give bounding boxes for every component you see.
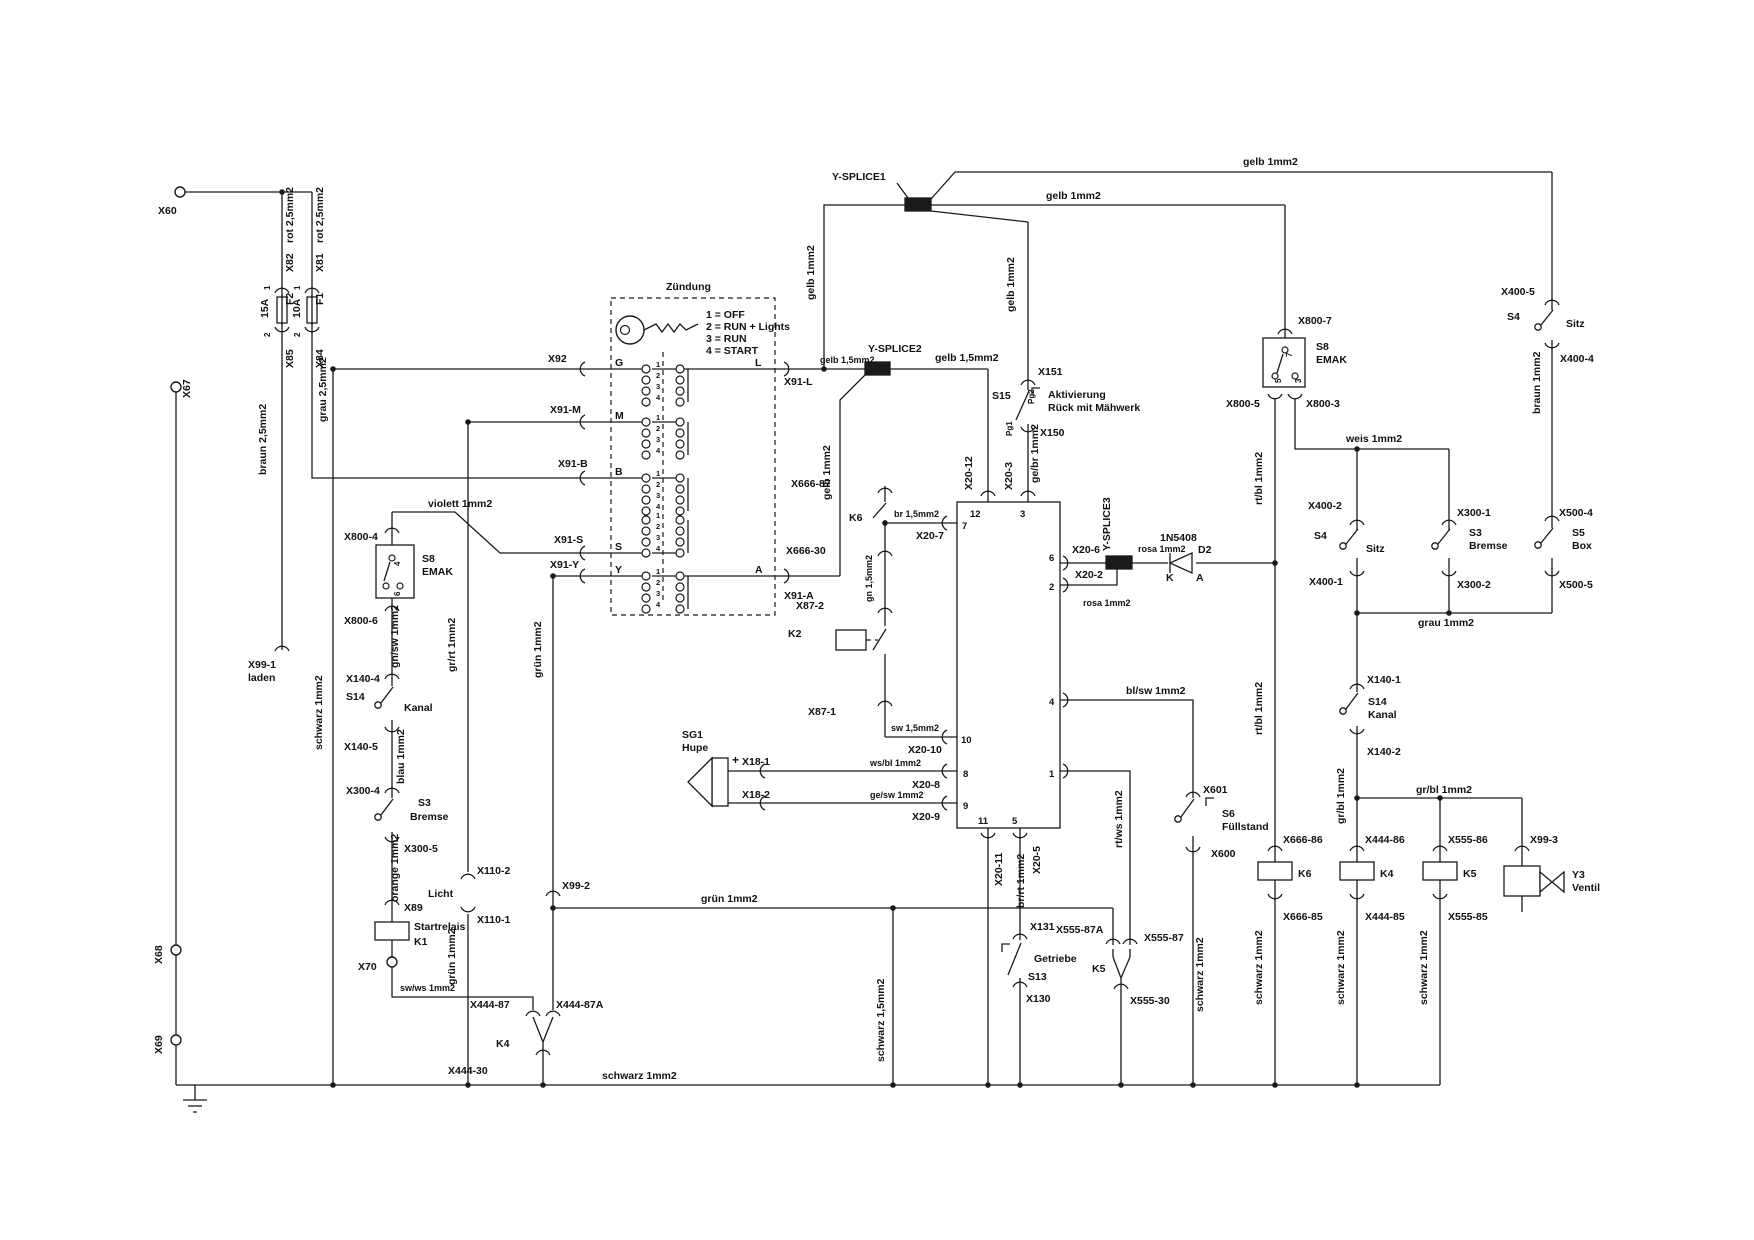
wire: [1060, 700, 1193, 798]
label-s3l: S3: [418, 797, 431, 809]
ignition-contact-icon: [642, 549, 650, 557]
label-wsbl: ws/bl 1mm2: [869, 758, 921, 768]
label-x55587a: X555-87A: [1056, 924, 1104, 936]
label-k5: K5: [1463, 868, 1477, 880]
label-k6: K6: [1298, 868, 1312, 880]
label-x1402: X140-2: [1367, 746, 1401, 758]
label-igM3: 3: [656, 435, 660, 444]
label-igG2: 2: [656, 371, 660, 380]
connector-arc: [1288, 394, 1302, 399]
label-x8003: X800-3: [1306, 398, 1340, 410]
ignition-contact-icon: [642, 376, 650, 384]
label-f1: F1: [314, 293, 326, 305]
wire: [392, 512, 644, 553]
junction-dot: [1354, 446, 1360, 452]
label-braun1: braun 1mm2: [1531, 351, 1543, 414]
label-igB2: 2: [656, 480, 660, 489]
label-tY: Y: [615, 564, 622, 576]
switch-pivot-icon: [1175, 816, 1181, 822]
junction-dot: [1354, 1082, 1360, 1088]
ignition-contact-icon: [642, 507, 650, 515]
label-p7: 7: [1285, 352, 1294, 357]
label-igS4: 4: [656, 544, 661, 553]
label-s15: S15: [992, 390, 1011, 402]
ignition-contact-icon: [676, 507, 684, 515]
label-gesw: ge/sw 1mm2: [870, 790, 924, 800]
label-s8r: S8: [1316, 341, 1329, 353]
label-igY3: 3: [656, 589, 660, 598]
label-grrt: gr/rt 1mm2: [446, 618, 458, 672]
wire: [1346, 529, 1358, 544]
k4-coil-icon: [1340, 862, 1374, 880]
label-gebr: ge/br 1mm2: [1029, 424, 1041, 483]
label-zuendung: Zündung: [666, 281, 711, 293]
wire: [543, 1017, 553, 1042]
label-br15: br 1,5mm2: [894, 509, 939, 519]
junction-dot: [1272, 560, 1278, 566]
label-kanalr: Kanal: [1368, 709, 1397, 721]
label-ys1: Y-SPLICE1: [832, 171, 886, 183]
x60-terminal: [175, 187, 185, 197]
ignition-contact-icon: [642, 429, 650, 437]
ignition-contact-icon: [642, 527, 650, 535]
label-x150: X150: [1040, 427, 1065, 439]
label-x1401: X140-1: [1367, 674, 1401, 686]
label-x85: X85: [284, 349, 296, 368]
label-brrt: br/rt 1mm2: [1015, 854, 1027, 908]
ignition-contact-icon: [676, 429, 684, 437]
label-kanall: Kanal: [404, 702, 433, 714]
ignition-contact-icon: [642, 387, 650, 395]
diode-triangle-icon: [1170, 553, 1192, 573]
label-rosab: rosa 1mm2: [1083, 598, 1131, 608]
label-igB1: 1: [656, 469, 660, 478]
x70-terminal: [387, 957, 397, 967]
label-schw15: schwarz 1,5mm2: [875, 978, 887, 1062]
s8-pin-icon: [383, 583, 389, 589]
label-x82: X82: [284, 253, 296, 272]
ignition-contact-icon: [676, 365, 684, 373]
connector-arc: [1268, 394, 1282, 399]
wire: [1277, 354, 1283, 373]
label-x151: X151: [1038, 366, 1063, 378]
label-y3: Y3: [1572, 869, 1585, 881]
wire: [644, 324, 698, 332]
y3-bowtie-left-icon: [1540, 872, 1552, 892]
wire: [1002, 944, 1010, 952]
connector-arc: [526, 1011, 540, 1016]
label-f2p2: 2: [263, 332, 272, 337]
label-x92: X92: [548, 353, 567, 365]
label-k4c: K4: [496, 1038, 510, 1050]
junction-dot: [985, 1082, 991, 1088]
connector-arc: [546, 1011, 560, 1016]
label-schwbus: schwarz 1mm2: [602, 1070, 677, 1082]
ignition-contact-icon: [676, 583, 684, 591]
label-orange1: orange 1mm2: [389, 834, 401, 902]
wire: [1008, 943, 1021, 975]
wire: [931, 172, 1552, 199]
label-x91s: X91-S: [554, 534, 583, 546]
wire: [1346, 693, 1358, 709]
key-icon-hole: [621, 326, 630, 335]
label-leg2: 2 = RUN + Lights: [706, 321, 790, 333]
label-b1: 1: [1049, 769, 1055, 780]
ignition-contact-icon: [676, 451, 684, 459]
wire: [312, 323, 644, 478]
x67-terminal: [171, 382, 181, 392]
label-x81: X81: [314, 253, 326, 272]
k5-coil-icon: [1423, 862, 1457, 880]
label-b12: 12: [970, 509, 981, 520]
wire: [873, 629, 886, 650]
label-leg4: 4 = START: [706, 345, 759, 357]
y3-valve-body-icon: [1504, 866, 1540, 896]
connector-arc: [461, 907, 475, 912]
label-x2012: X20-12: [963, 456, 975, 490]
label-x69: X69: [153, 1035, 165, 1054]
label-x182: X18-2: [742, 789, 770, 801]
label-x1405: X140-5: [344, 741, 378, 753]
label-x66630: X666-30: [786, 545, 826, 557]
label-rtbla: rt/bl 1mm2: [1253, 452, 1265, 505]
label-igS1: 1: [656, 511, 660, 520]
label-x3004: X300-4: [346, 785, 380, 797]
label-x5004: X500-4: [1559, 507, 1593, 519]
label-x991: X99-1: [248, 659, 276, 671]
label-s4t: S4: [1507, 311, 1520, 323]
label-gelb1a: gelb 1mm2: [821, 445, 833, 500]
wire: [1541, 310, 1553, 325]
label-x44430: X444-30: [448, 1065, 488, 1077]
label-x91b: X91-B: [558, 458, 588, 470]
junction-dot: [1118, 1082, 1124, 1088]
ignition-contact-icon: [676, 538, 684, 546]
s8-pin-icon: [397, 583, 403, 589]
label-x55585: X555-85: [1448, 911, 1488, 923]
label-igB3: 3: [656, 491, 660, 500]
ignition-contact-icon: [642, 496, 650, 504]
label-s4m: S4: [1314, 530, 1327, 542]
switch-pivot-icon: [1432, 543, 1438, 549]
label-gnsw: gn/sw 1mm2: [389, 605, 401, 668]
label-gruenh: grün 1mm2: [701, 893, 758, 905]
ignition-contact-icon: [676, 418, 684, 426]
label-x44486: X444-86: [1365, 834, 1405, 846]
y-splice3: [1106, 556, 1132, 569]
label-x207: X20-7: [916, 530, 944, 542]
label-x206: X20-6: [1072, 544, 1100, 556]
label-x8007: X800-7: [1298, 315, 1332, 327]
label-sw15: sw 1,5mm2: [891, 723, 939, 733]
horn-bell-icon: [688, 758, 712, 806]
label-igG4: 4: [656, 393, 661, 402]
ignition-contact-icon: [642, 440, 650, 448]
label-gelb15b: gelb 1,5mm2: [935, 352, 999, 364]
label-x66685: X666-85: [1283, 911, 1323, 923]
label-p5: 5: [1274, 378, 1283, 383]
wire: [381, 799, 393, 815]
junction-dot: [540, 1082, 546, 1088]
label-grblh: gr/bl 1mm2: [1416, 784, 1472, 796]
label-x1102: X110-2: [477, 865, 510, 877]
ignition-contact-icon: [676, 440, 684, 448]
label-x68: X68: [153, 945, 165, 964]
s8-pin-icon: [1292, 373, 1298, 379]
wire: [1206, 798, 1214, 806]
label-x871: X87-1: [808, 706, 836, 718]
ignition-contact-icon: [642, 398, 650, 406]
junction-dot: [465, 419, 471, 425]
label-x5005: X500-5: [1559, 579, 1593, 591]
label-x67: X67: [181, 379, 193, 398]
ignition-contact-icon: [676, 474, 684, 482]
label-leg1: 1 = OFF: [706, 309, 745, 321]
switch-pivot-icon: [1535, 324, 1541, 330]
label-k5c: K5: [1092, 963, 1106, 975]
label-rosaa: rosa 1mm2: [1138, 544, 1186, 554]
label-a15: 15A: [259, 298, 271, 318]
label-igS3: 3: [656, 533, 660, 542]
label-f1p1: 1: [293, 285, 302, 290]
ignition-contact-icon: [642, 485, 650, 493]
label-x2011: X20-11: [993, 853, 1005, 886]
label-tL: L: [755, 357, 762, 369]
label-x202: X20-2: [1075, 569, 1103, 581]
label-b5: 5: [1012, 816, 1018, 827]
label-b9: 9: [963, 801, 968, 812]
switch-pivot-icon: [1340, 708, 1346, 714]
label-violett: violett 1mm2: [428, 498, 492, 510]
label-gn15: gn 1,5mm2: [864, 555, 874, 602]
x69-terminal: [171, 1035, 181, 1045]
label-x205: X20-5: [1031, 846, 1043, 874]
label-x91m: X91-M: [550, 404, 581, 416]
label-licht: Licht: [428, 888, 454, 900]
s8-emak-left-box-icon: [376, 545, 414, 598]
label-igY1: 1: [656, 567, 660, 576]
label-tS: S: [615, 541, 622, 553]
ignition-contact-icon: [676, 516, 684, 524]
label-x3001: X300-1: [1457, 507, 1491, 519]
junction-dot: [1017, 1082, 1023, 1088]
wire: [533, 1017, 543, 1042]
label-laden: laden: [248, 672, 275, 684]
label-s6: S6: [1222, 808, 1235, 820]
label-sitzt: Sitz: [1566, 318, 1585, 330]
label-tG: G: [615, 357, 623, 369]
junction-dot: [550, 573, 556, 579]
label-akt2: Rück mit Mähwerk: [1048, 402, 1140, 414]
label-x55530: X555-30: [1130, 995, 1170, 1007]
label-igB4: 4: [656, 502, 661, 511]
label-s13: S13: [1028, 971, 1047, 983]
ignition-contact-icon: [642, 583, 650, 591]
ignition-contact-icon: [642, 474, 650, 482]
label-x4001: X400-1: [1309, 576, 1343, 588]
label-x4002: X400-2: [1308, 500, 1342, 512]
label-x203: X20-3: [1003, 462, 1015, 490]
label-da: A: [1196, 572, 1204, 584]
label-p3: 3: [1294, 378, 1303, 383]
label-x89: X89: [404, 902, 423, 914]
label-emakl: EMAK: [422, 566, 453, 578]
ignition-contact-icon: [676, 605, 684, 613]
label-x55586: X555-86: [1448, 834, 1488, 846]
label-a10: 10A: [291, 298, 303, 318]
label-leg3: 3 = RUN: [706, 333, 747, 345]
ignition-contact-icon: [676, 485, 684, 493]
label-x601: X601: [1203, 784, 1228, 796]
label-igM1: 1: [656, 413, 660, 422]
connector-arc: [461, 874, 475, 879]
label-x4005: X400-5: [1501, 286, 1535, 298]
ignition-contact-icon: [642, 538, 650, 546]
ignition-contact-icon: [642, 418, 650, 426]
label-x70: X70: [358, 961, 377, 973]
label-b3: 3: [1020, 509, 1025, 520]
label-k2: K2: [788, 628, 802, 640]
label-x44487a: X444-87A: [556, 999, 604, 1011]
switch-pivot-icon: [375, 814, 381, 820]
label-plus: +: [732, 753, 739, 767]
label-rot25a: rot 2,5mm2: [284, 187, 296, 243]
wire: [931, 211, 1028, 222]
y3-bowtie-right-icon: [1552, 872, 1564, 892]
s8-pin-icon: [389, 555, 395, 561]
label-n5408: 1N5408: [1160, 532, 1197, 544]
label-grblv: gr/bl 1mm2: [1335, 768, 1347, 824]
label-schw2: schwarz 1mm2: [1335, 930, 1347, 1005]
label-x181: X18-1: [742, 756, 770, 768]
ignition-contact-icon: [676, 496, 684, 504]
label-braun25: braun 2,5mm2: [257, 404, 269, 475]
schematic: X60rot 2,5mm2X821F215A2X85braun 2,5mm2X9…: [0, 0, 1754, 1240]
label-x91y: X91-Y: [550, 559, 579, 571]
label-ys3: Y-SPLICE3: [1101, 497, 1113, 551]
label-x872: X87-2: [796, 600, 824, 612]
label-x8006: X800-6: [344, 615, 378, 627]
ignition-contact-icon: [642, 572, 650, 580]
label-f2p1: 1: [263, 285, 272, 290]
label-igY4: 4: [656, 600, 661, 609]
ignition-contact-icon: [676, 387, 684, 395]
label-schw4: schwarz 1mm2: [1194, 937, 1206, 1012]
label-weis: weis 1mm2: [1345, 433, 1402, 445]
y-splice1: [905, 198, 931, 211]
label-igG1: 1: [656, 360, 660, 369]
ignition-contact-icon: [676, 572, 684, 580]
label-tA: A: [755, 564, 763, 576]
junction-dot: [882, 520, 888, 526]
label-sg1: SG1: [682, 729, 703, 741]
labels-layer: X60rot 2,5mm2X821F215A2X85braun 2,5mm2X9…: [153, 156, 1600, 1082]
label-k4: K4: [1380, 868, 1394, 880]
label-x600: X600: [1211, 848, 1236, 860]
label-x44487: X444-87: [470, 999, 510, 1011]
ignition-contact-icon: [642, 365, 650, 373]
wire: [381, 687, 393, 703]
label-x2010: X20-10: [908, 744, 942, 756]
label-gelb1s: gelb 1mm2: [1005, 257, 1017, 312]
label-x4004: X400-4: [1560, 353, 1594, 365]
label-s14r: S14: [1368, 696, 1387, 708]
junction-dot: [1354, 795, 1360, 801]
x68-terminal: [171, 945, 181, 955]
label-sitzm: Sitz: [1366, 543, 1385, 555]
label-x66687: X666-87: [791, 478, 831, 490]
ignition-contact-icon: [676, 398, 684, 406]
label-breml: Bremse: [410, 811, 449, 823]
label-box: Box: [1572, 540, 1592, 552]
junction-dot: [1437, 795, 1443, 801]
label-k1: K1: [414, 936, 428, 948]
label-gelb15a: gelb 1,5mm2: [820, 355, 875, 365]
label-x1404: X140-4: [346, 673, 380, 685]
label-ventil: Ventil: [1572, 882, 1600, 894]
label-schw3: schwarz 1mm2: [1418, 930, 1430, 1005]
junction-dot: [330, 366, 336, 372]
label-b8: 8: [963, 769, 968, 780]
label-d2: D2: [1198, 544, 1212, 556]
ignition-contact-icon: [676, 527, 684, 535]
label-b7: 7: [962, 521, 967, 532]
label-x993: X99-3: [1530, 834, 1558, 846]
label-k6c: K6: [849, 512, 863, 524]
label-x91l: X91-L: [784, 376, 813, 388]
s8-pin-icon: [1272, 373, 1278, 379]
ignition-contact-icon: [676, 376, 684, 384]
label-swws: sw/ws 1mm2: [400, 983, 455, 993]
label-x60: X60: [158, 205, 177, 217]
k2-relay-box-icon: [836, 630, 866, 650]
ignition-contact-icon: [642, 516, 650, 524]
label-s3r: S3: [1469, 527, 1482, 539]
label-rtblb: rt/bl 1mm2: [1253, 682, 1265, 735]
wire: [1438, 529, 1450, 544]
label-rtws: rt/ws 1mm2: [1113, 790, 1125, 848]
label-igM2: 2: [656, 424, 660, 433]
label-x44485: X444-85: [1365, 911, 1405, 923]
ignition-contact-icon: [642, 594, 650, 602]
wire: [384, 562, 390, 581]
label-s14l: S14: [346, 691, 365, 703]
label-x992: X99-2: [562, 880, 590, 892]
junction-dot: [1190, 1082, 1196, 1088]
wire: [840, 372, 868, 576]
label-p6l: 6: [393, 591, 402, 596]
label-x8004: X800-4: [344, 531, 378, 543]
label-gelb1d: gelb 1mm2: [805, 245, 817, 300]
junction-dot: [821, 366, 827, 372]
s8-pin-icon: [1282, 347, 1288, 353]
k6-coil-icon: [1258, 862, 1292, 880]
label-bremr: Bremse: [1469, 540, 1508, 552]
label-igY2: 2: [656, 578, 660, 587]
label-s5: S5: [1572, 527, 1585, 539]
label-igS2: 2: [656, 522, 660, 531]
wire: [1113, 957, 1121, 978]
label-x66686: X666-86: [1283, 834, 1323, 846]
schematic-page: X60rot 2,5mm2X821F215A2X85braun 2,5mm2X9…: [0, 0, 1754, 1240]
label-pg1: Pg1: [1005, 421, 1014, 436]
junction-dot: [890, 905, 896, 911]
label-x209: X20-9: [912, 811, 940, 823]
label-schwg: schwarz 1mm2: [313, 675, 325, 750]
junction-dot: [1446, 610, 1452, 616]
wire: [1121, 957, 1130, 978]
label-x1101: X110-1: [477, 914, 510, 926]
